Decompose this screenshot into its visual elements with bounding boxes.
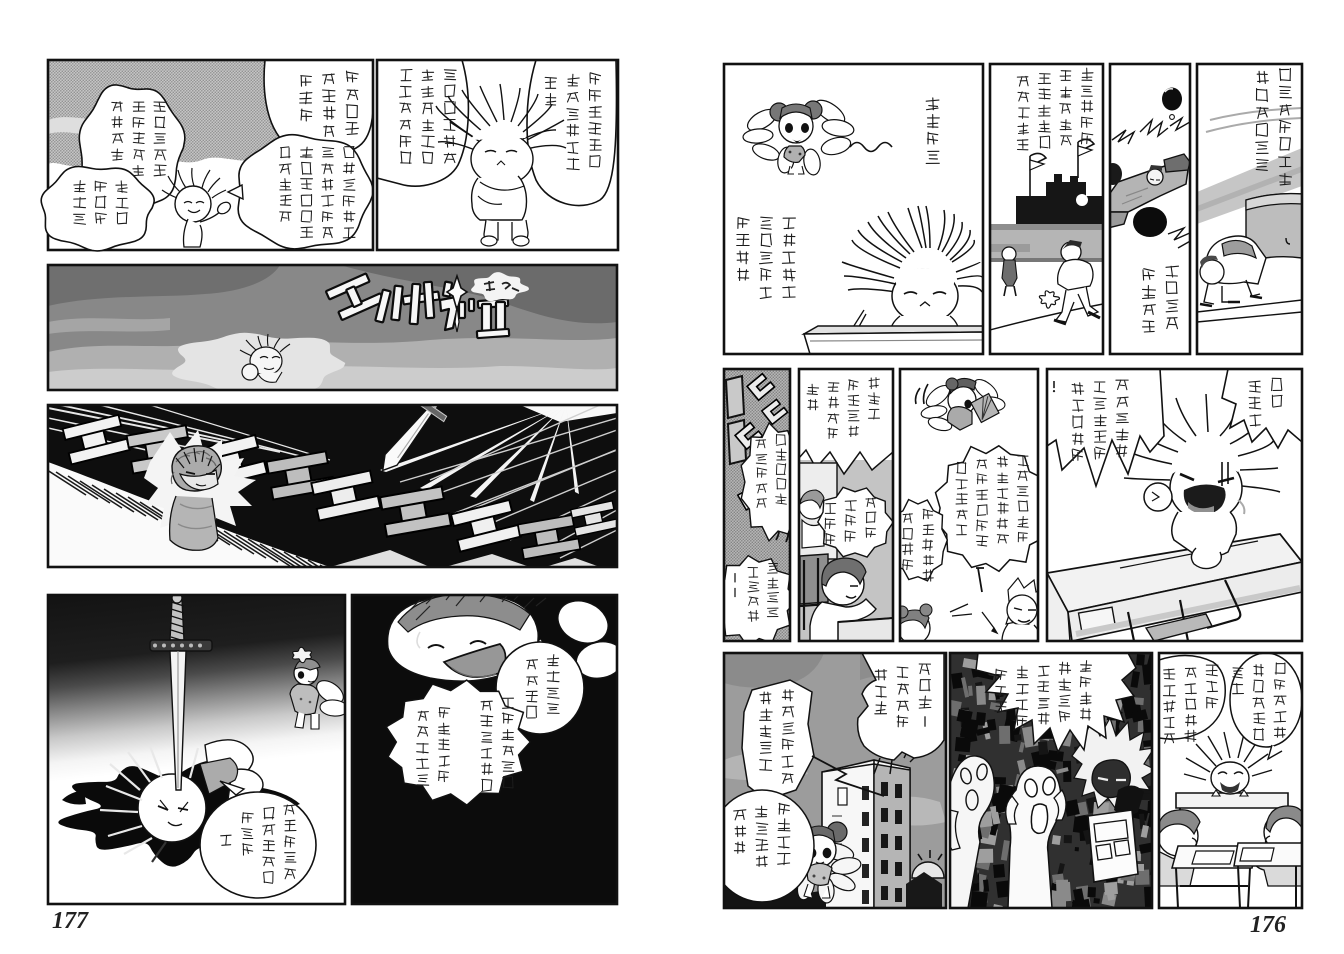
svg-text:177: 177 (52, 908, 89, 934)
svg-text:176: 176 (1250, 912, 1286, 938)
